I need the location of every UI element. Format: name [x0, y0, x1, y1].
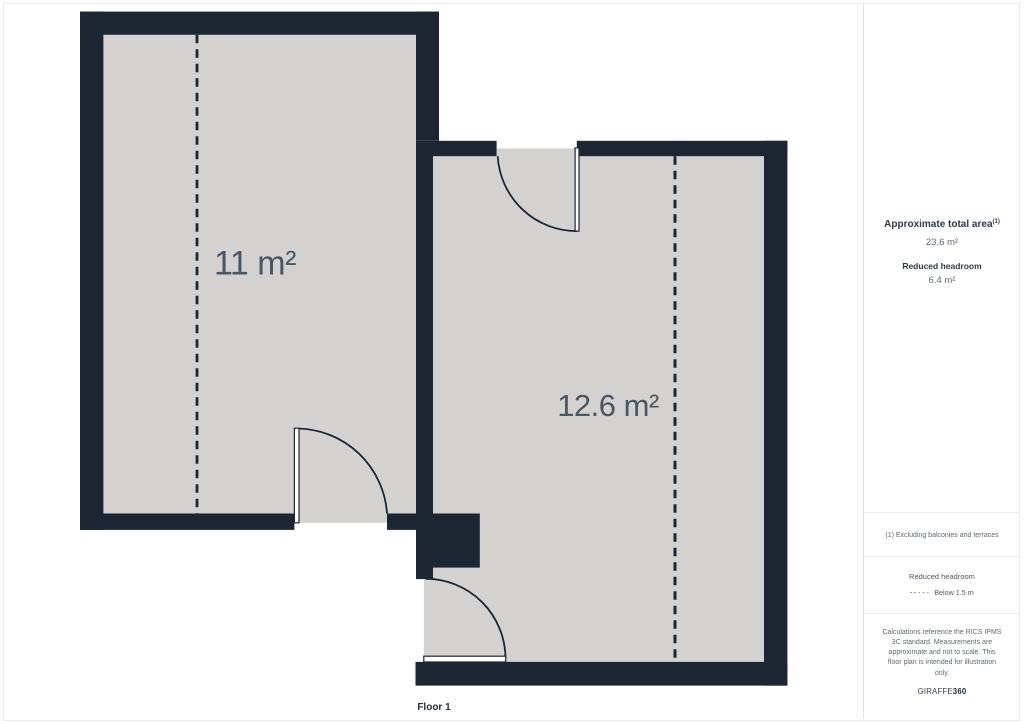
svg-text:12.6 m²: 12.6 m²	[557, 388, 659, 423]
svg-text:11 m²: 11 m²	[214, 245, 296, 283]
